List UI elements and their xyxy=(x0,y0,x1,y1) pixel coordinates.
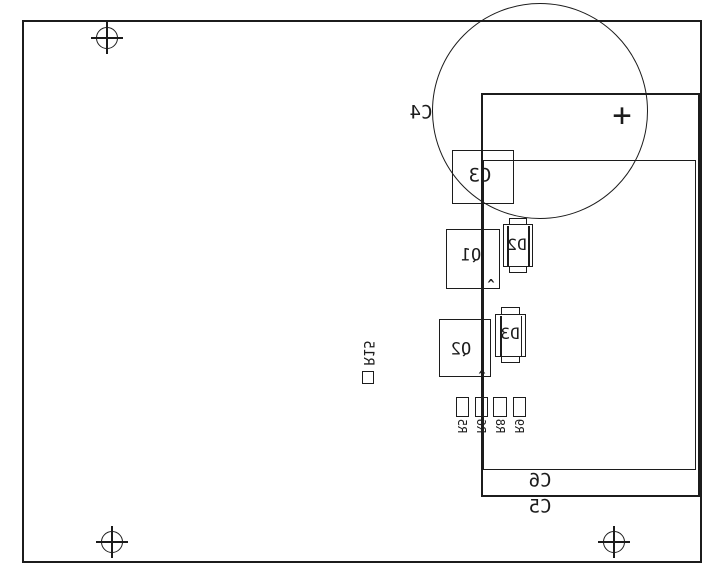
resistor-r5-pad xyxy=(456,397,469,417)
resistor-r15-pad xyxy=(362,371,374,384)
pcb-silkscreen-drawing: C4 + C5 C6 C3 Q1 ^ Q2 ^ D2 D3 R5 R6 R8 R… xyxy=(0,0,725,586)
diode-d2-tab-bottom xyxy=(509,266,527,273)
label-r8: R8 xyxy=(494,419,506,433)
mounting-hole-bottom-right xyxy=(598,526,630,558)
pin1-marker-q1: ^ xyxy=(487,278,494,290)
label-d2: D2 xyxy=(507,237,526,253)
label-r15: R15 xyxy=(361,340,375,365)
diode-d2-stripe-right xyxy=(528,226,530,266)
label-c5: C5 xyxy=(529,498,552,517)
diode-d3-stripe-right xyxy=(521,316,523,356)
resistor-r6-pad xyxy=(475,397,488,417)
label-r6: R6 xyxy=(475,419,487,433)
pin1-marker-q2: ^ xyxy=(478,369,485,381)
label-q2: Q2 xyxy=(451,342,471,359)
label-c4: C4 xyxy=(410,104,433,123)
mounting-hole-bottom-left xyxy=(96,526,128,558)
hole-crosshair-vertical xyxy=(613,526,615,558)
label-q1: Q1 xyxy=(461,248,481,265)
resistor-r8-pad xyxy=(493,397,507,417)
diode-d3-tab-bottom xyxy=(501,356,520,363)
mounting-hole-top-left xyxy=(91,22,123,54)
resistor-r9-pad xyxy=(513,397,526,417)
label-r5: R5 xyxy=(456,419,468,433)
label-r9: R9 xyxy=(513,419,525,433)
hole-crosshair-vertical xyxy=(111,526,113,558)
hole-crosshair-vertical xyxy=(106,22,108,54)
label-c3: C3 xyxy=(469,167,492,186)
label-c6: C6 xyxy=(529,472,552,491)
label-d3: D3 xyxy=(500,326,519,342)
